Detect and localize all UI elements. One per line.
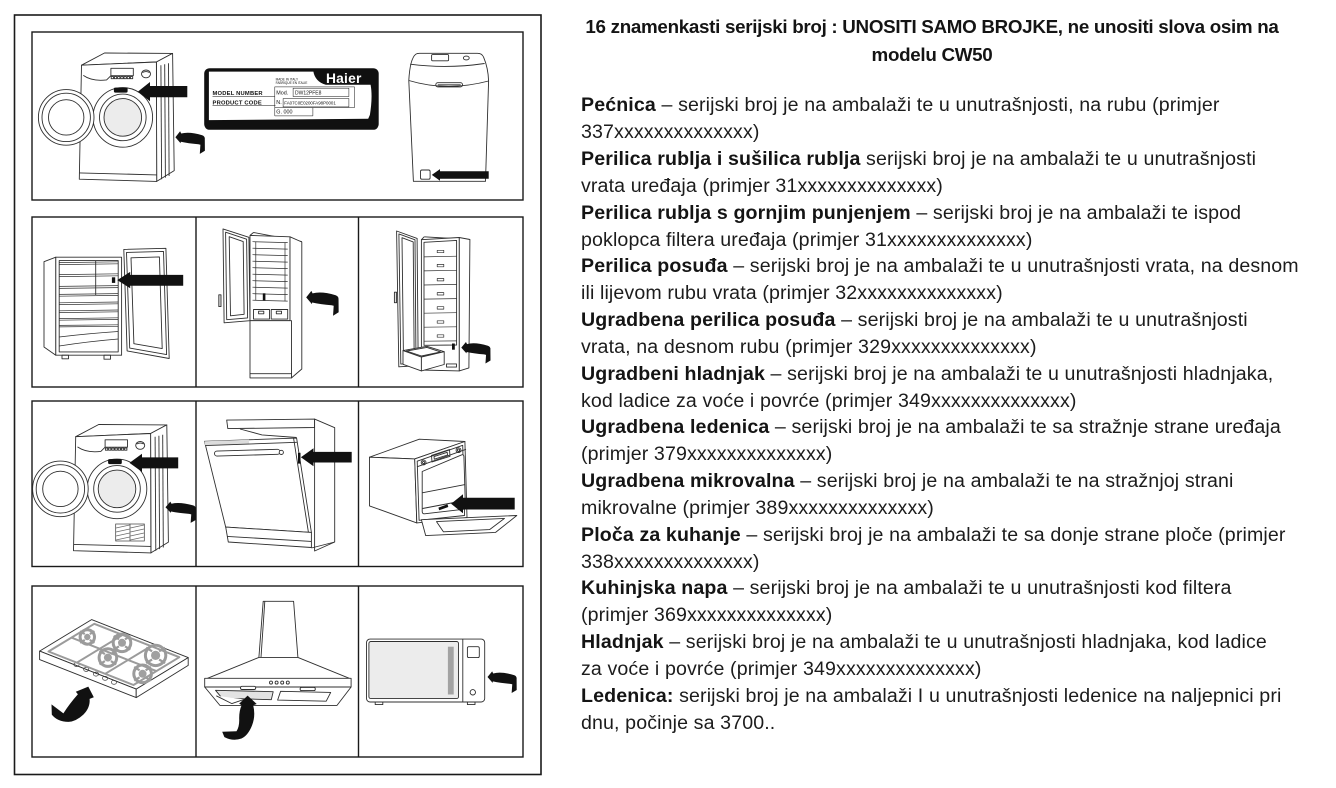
svg-text:G. 000: G. 000 xyxy=(276,110,292,116)
svg-text:Mod.: Mod. xyxy=(276,91,288,97)
svg-text:FABRIQUE EN ITALIE: FABRIQUE EN ITALIE xyxy=(276,81,308,85)
svg-text:N.: N. xyxy=(276,100,281,106)
svg-text:Haier: Haier xyxy=(326,71,362,86)
svg-text:DW12PFE8: DW12PFE8 xyxy=(295,90,322,96)
svg-text:FA07C0E0200FA98P0001: FA07C0E0200FA98P0001 xyxy=(284,100,336,105)
